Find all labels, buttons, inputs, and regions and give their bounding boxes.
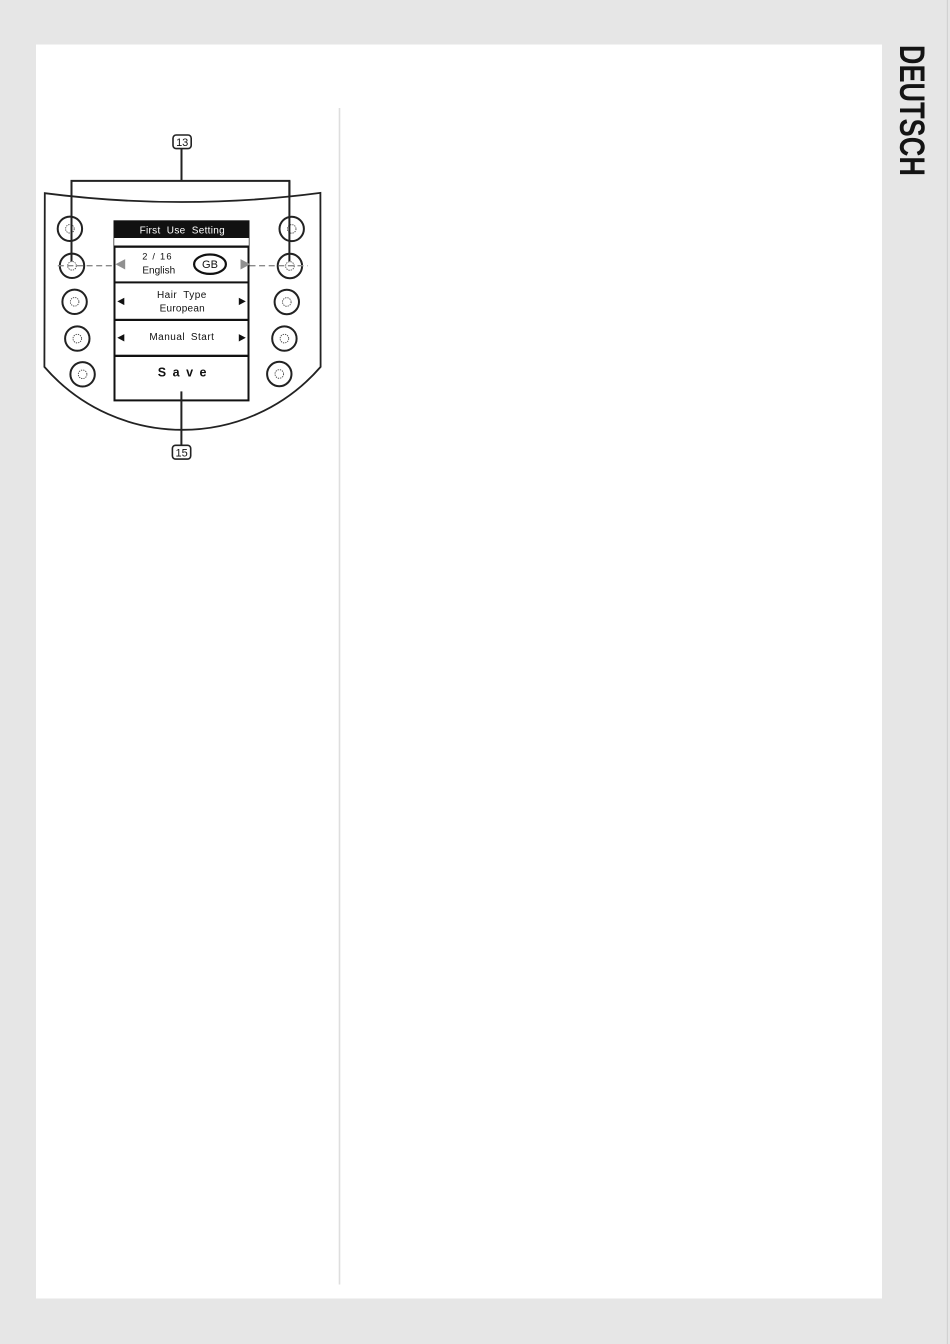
svg-text:15: 15	[175, 448, 187, 460]
svg-text:Save: Save	[158, 365, 213, 379]
svg-text:English: English	[142, 265, 175, 276]
svg-text:European: European	[160, 304, 205, 315]
svg-text:2 / 16: 2 / 16	[142, 252, 172, 262]
svg-text:DEUTSCH: DEUTSCH	[892, 45, 931, 176]
svg-text:Manual Start: Manual Start	[149, 332, 214, 343]
svg-text:First Use Setting: First Use Setting	[140, 226, 225, 237]
svg-text:Hair Type: Hair Type	[157, 290, 207, 301]
svg-text:13: 13	[176, 137, 188, 149]
svg-text:GB: GB	[202, 259, 218, 271]
